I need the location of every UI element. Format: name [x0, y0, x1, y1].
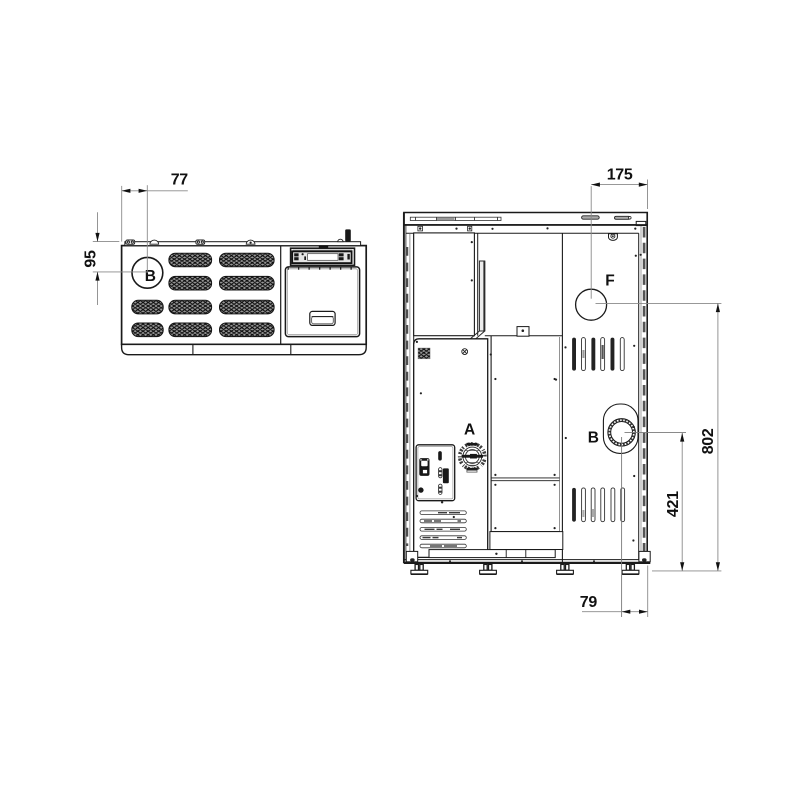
- svg-text:421: 421: [665, 491, 682, 517]
- svg-text:95: 95: [83, 250, 100, 268]
- svg-text:A: A: [464, 421, 475, 438]
- svg-text:B: B: [145, 268, 156, 285]
- svg-text:F: F: [605, 273, 614, 290]
- svg-text:79: 79: [580, 594, 598, 611]
- svg-text:802: 802: [700, 428, 717, 454]
- svg-text:77: 77: [171, 172, 189, 189]
- svg-text:B: B: [588, 430, 599, 447]
- svg-text:175: 175: [607, 166, 633, 183]
